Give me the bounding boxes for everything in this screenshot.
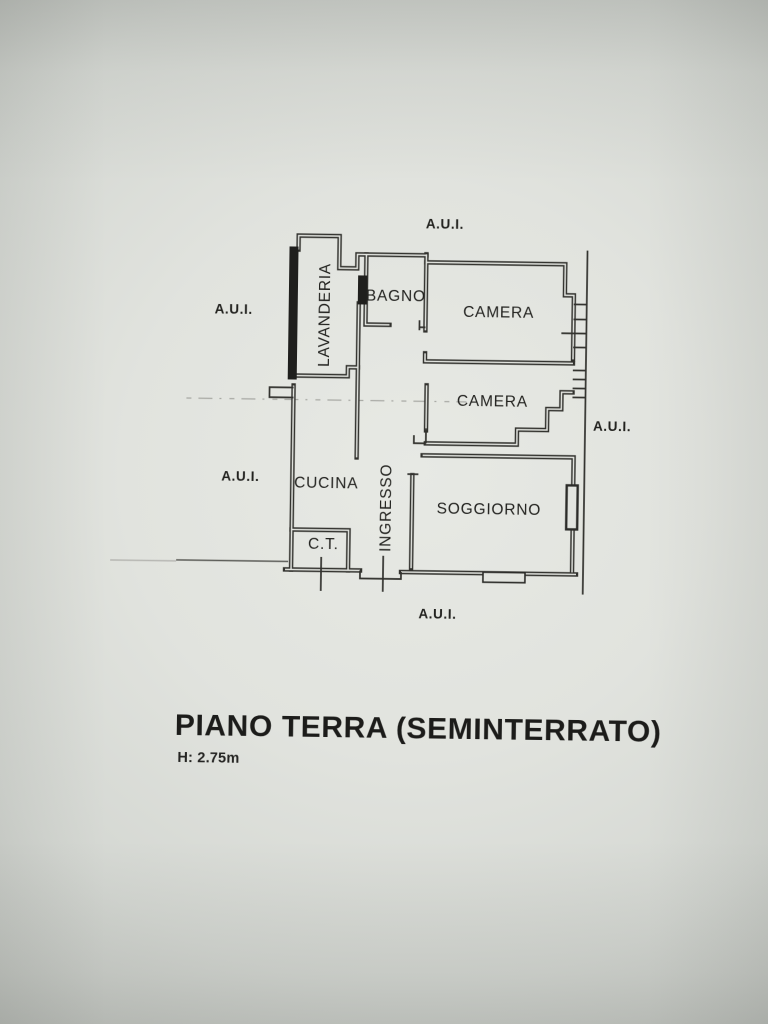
thick-wall-lavanderia-left	[288, 246, 299, 379]
aui-label-left-upper: A.U.I.	[215, 301, 253, 317]
plan-title: PIANO TERRA (SEMINTERRATO)	[175, 709, 662, 750]
room-label-bagno: BAGNO	[366, 288, 426, 306]
room-label-ingresso: INGRESSO	[377, 464, 395, 552]
exterior-ground-line	[176, 560, 288, 562]
exterior-ground-line-faint	[110, 560, 176, 561]
aui-label-top: A.U.I.	[426, 216, 464, 232]
aui-label-left-lower: A.U.I.	[221, 469, 259, 485]
room-label-lavanderia: LAVANDERIA	[316, 263, 334, 367]
window-soggiorno-bottom	[483, 572, 525, 583]
photographed-floorplan-page: LAVANDERIA BAGNO CAMERA CAMERA CUCINA IN…	[0, 0, 768, 1024]
aui-label-right: A.U.I.	[593, 419, 631, 435]
room-label-camera-1: CAMERA	[463, 304, 534, 322]
window-soggiorno-right	[566, 485, 578, 529]
aui-label-bottom: A.U.I.	[418, 606, 456, 622]
room-labels: LAVANDERIA BAGNO CAMERA CAMERA CUCINA IN…	[293, 263, 544, 556]
room-label-cucina: CUCINA	[294, 475, 358, 493]
axis-tick-mark	[383, 556, 384, 592]
room-label-ct: C.T.	[308, 536, 339, 553]
right-boundary-line	[583, 251, 588, 595]
room-label-camera-2: CAMERA	[457, 393, 528, 411]
left-wall-stub	[269, 387, 293, 397]
window-symbols	[483, 484, 578, 583]
plan-height-note: H: 2.75m	[177, 750, 239, 767]
room-label-soggiorno: SOGGIORNO	[437, 501, 542, 519]
entrance-threshold	[360, 570, 401, 579]
floor-plan-drawing: LAVANDERIA BAGNO CAMERA CAMERA CUCINA IN…	[0, 0, 768, 1024]
paper-sheet: LAVANDERIA BAGNO CAMERA CAMERA CUCINA IN…	[0, 0, 768, 1024]
